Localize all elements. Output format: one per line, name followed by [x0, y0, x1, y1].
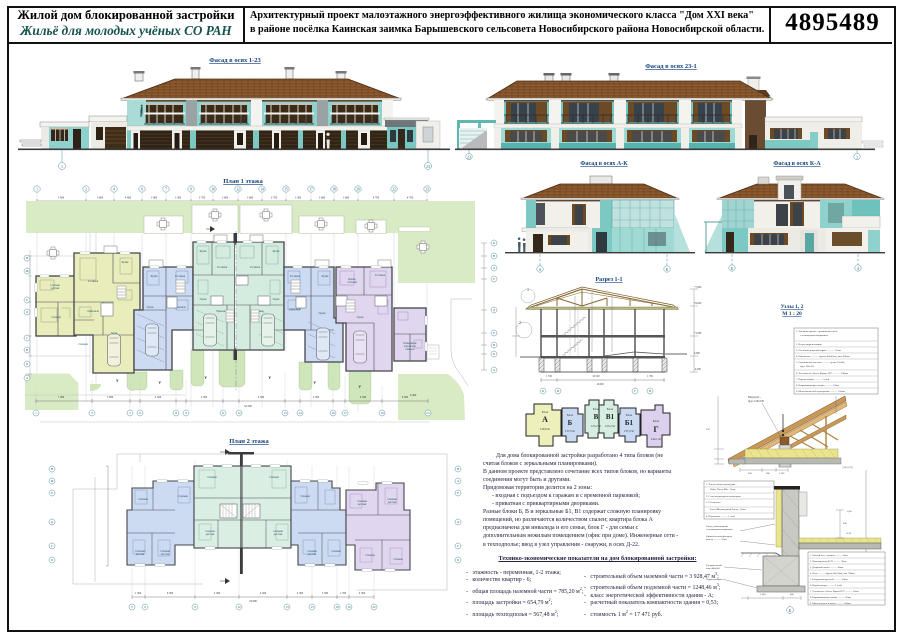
svg-text:4 500: 4 500 — [155, 396, 162, 399]
svg-text:22: 22 — [392, 187, 396, 191]
svg-text:В: В — [26, 348, 28, 352]
svg-text:9. Монолитная ж/б перекрытия —: 9. Монолитная ж/б перекрытия ——— 150мм — [796, 390, 845, 393]
svg-text:Блок: Блок — [593, 407, 600, 411]
svg-text:1. Фасадная краска - кремниева: 1. Фасадная краска - кремниевая стена — [796, 330, 838, 333]
svg-text:К: К — [666, 268, 669, 272]
svg-text:Гараж: Гараж — [319, 312, 326, 315]
svg-text:Е: Е — [457, 491, 459, 495]
svg-text:2 500: 2 500 — [322, 592, 329, 595]
svg-text:Б: Б — [493, 352, 495, 356]
svg-text:Блок: Блок — [567, 413, 574, 417]
svg-text:3 600: 3 600 — [247, 197, 254, 200]
svg-text:детская: детская — [51, 287, 60, 290]
svg-text:Прихожая: Прихожая — [289, 308, 301, 311]
svg-text:5 000: 5 000 — [107, 396, 114, 399]
svg-text:6 400: 6 400 — [410, 394, 417, 397]
svg-text:К: К — [731, 267, 734, 271]
svg-text:Гараж: Гараж — [273, 298, 280, 301]
svg-text:23: 23 — [425, 187, 429, 191]
svg-text:Спальня: Спальня — [78, 343, 88, 346]
svg-text:Фасад в осях А-К: Фасад в осях А-К — [580, 161, 628, 167]
svg-text:Ж: Ж — [51, 479, 54, 483]
svg-text:4. Лаги ——— брусок 40х70мм, ша: 4. Лаги ——— брусок 40х70мм, шаг 700мм — [810, 572, 855, 575]
svg-text:4 500: 4 500 — [360, 396, 367, 399]
svg-text:Г: Г — [457, 544, 459, 548]
svg-text:2: 2 — [519, 320, 521, 325]
svg-text:23: 23 — [467, 154, 471, 159]
svg-text:11: 11 — [221, 411, 224, 415]
svg-text:Б: Б — [51, 558, 53, 562]
svg-text:6 400: 6 400 — [402, 396, 409, 399]
svg-text:1 700: 1 700 — [546, 375, 553, 378]
svg-text:Гостиная: Гостиная — [290, 275, 301, 278]
svg-text:4 300: 4 300 — [359, 592, 366, 595]
svg-text:3 600: 3 600 — [222, 197, 229, 200]
svg-text:Е: Е — [493, 277, 495, 281]
svg-text:200: 200 — [748, 472, 752, 475]
svg-text:Б: Б — [26, 362, 28, 366]
svg-text:4 700: 4 700 — [407, 197, 414, 200]
svg-text:Кухня: Кухня — [200, 250, 208, 253]
svg-text:2. Ветро-гидроизоляция: 2. Ветро-гидроизоляция — [796, 343, 822, 346]
svg-text:14 600: 14 600 — [596, 383, 604, 386]
svg-text:400: 400 — [790, 593, 794, 596]
svg-text:3. Дощатый настил ——— 40мм: 3. Дощатый настил ——— 40мм — [810, 566, 844, 569]
svg-text:Izover/Штукатурный Фасад - 50м: Izover/Штукатурный Фасад - 50мм — [710, 508, 746, 511]
svg-text:А: А — [857, 267, 860, 271]
svg-text:Спальня: Спальня — [51, 316, 61, 319]
svg-text:15: 15 — [310, 605, 314, 609]
svg-text:1 500: 1 500 — [135, 592, 142, 595]
svg-text:детская: детская — [206, 533, 215, 536]
svg-text:В: В — [594, 413, 599, 421]
svg-text:детская: детская — [161, 553, 170, 556]
svg-text:18: 18 — [335, 605, 339, 609]
svg-text:с полимерным покрытием: с полимерным покрытием — [800, 334, 828, 337]
svg-text:+7,600: +7,600 — [694, 286, 702, 289]
svg-text:1: 1 — [527, 287, 529, 292]
svg-text:Фасад в осях 23-1: Фасад в осях 23-1 — [645, 63, 697, 70]
svg-text:34 900: 34 900 — [249, 600, 257, 603]
svg-text:19: 19 — [380, 411, 384, 415]
svg-text:4 500: 4 500 — [201, 396, 208, 399]
svg-text:Узлы 1, 2: Узлы 1, 2 — [781, 304, 804, 310]
svg-text:+3,300: +3,300 — [694, 332, 702, 335]
svg-text:4 300: 4 300 — [260, 592, 267, 595]
svg-text:брус 100х150: брус 100х150 — [800, 365, 815, 368]
svg-text:Гараж: Гараж — [147, 306, 154, 309]
svg-text:Мауэрлат -: Мауэрлат - — [748, 396, 761, 399]
svg-text:детская: детская — [358, 503, 367, 506]
svg-text:20: 20 — [356, 187, 360, 191]
svg-text:14: 14 — [260, 187, 264, 191]
svg-text:7. Утеплитель «Izover Каркас П: 7. Утеплитель «Izover Каркас П37 ——— 25м… — [810, 590, 859, 593]
svg-text:8. Выравнивающая стяжка ——— 10: 8. Выравнивающая стяжка ——— 10мм — [796, 384, 839, 387]
svg-text:Спальня: Спальня — [331, 550, 341, 553]
svg-text:22: 22 — [372, 605, 376, 609]
svg-text:10: 10 — [211, 187, 215, 191]
svg-text:7 400: 7 400 — [58, 396, 65, 399]
svg-text:Фасад в осях 1-23: Фасад в осях 1-23 — [209, 57, 261, 64]
svg-text:16: 16 — [331, 411, 335, 415]
svg-text:6: 6 — [141, 187, 143, 191]
svg-text:4 500: 4 500 — [313, 396, 320, 399]
svg-text:900: 900 — [843, 522, 847, 525]
svg-text:17: 17 — [343, 411, 347, 415]
svg-text:Кухня: Кухня — [273, 250, 281, 253]
svg-text:Блок: Блок — [653, 419, 660, 423]
svg-text:4 700: 4 700 — [373, 197, 380, 200]
svg-text:столовая: столовая — [347, 281, 357, 284]
svg-text:Гараж: Гараж — [200, 298, 207, 301]
svg-text:Д: Д — [493, 308, 495, 312]
svg-text:4 500: 4 500 — [258, 396, 265, 399]
svg-text:-0,38: -0,38 — [846, 532, 852, 535]
svg-text:250: 250 — [706, 428, 710, 431]
svg-text:План 2 этажа: План 2 этажа — [229, 438, 269, 445]
svg-text:Спальня: Спальня — [300, 495, 310, 498]
svg-text:4 300: 4 300 — [214, 592, 221, 595]
svg-text:План 1 этажа: План 1 этажа — [223, 178, 263, 185]
svg-text:бизнеса: бизнеса — [406, 348, 416, 351]
svg-text:1 200: 1 200 — [779, 472, 785, 475]
svg-text:Г: Г — [26, 336, 28, 340]
svg-text:1: 1 — [36, 187, 38, 191]
svg-text:9: 9 — [190, 187, 192, 191]
svg-text:23: 23 — [426, 411, 430, 415]
svg-text:3 300: 3 300 — [175, 197, 182, 200]
svg-text:К: К — [789, 609, 792, 613]
svg-text:1. Чистый пол - ламинат ——— 8м: 1. Чистый пол - ламинат ——— 8мм — [810, 554, 848, 557]
svg-text:3 600: 3 600 — [97, 197, 104, 200]
svg-text:5. Стропильная система ——— дос: 5. Стропильная система ——— доска 150х40, — [796, 361, 845, 364]
svg-text:Гараж: Гараж — [111, 332, 118, 335]
svg-text:Спальня: Спальня — [393, 558, 403, 561]
svg-text:Б1: Б1 — [625, 419, 634, 427]
svg-text:Кухня: Кухня — [322, 275, 330, 278]
svg-text:Блок: Блок — [607, 407, 614, 411]
svg-text:5 400: 5 400 — [58, 197, 65, 200]
svg-text:Гостиная: Гостиная — [88, 280, 99, 283]
svg-text:9. Монолитная ж/б плита ——— 10: 9. Монолитная ж/б плита ——— 100мм — [810, 602, 851, 605]
svg-text:детская: детская — [136, 553, 145, 556]
svg-text:6 300: 6 300 — [167, 592, 174, 595]
svg-text:А: А — [542, 415, 548, 424]
svg-text:+0,00: +0,00 — [846, 510, 852, 513]
svg-text:Прихожая: Прихожая — [87, 310, 99, 313]
svg-text:Б: Б — [568, 419, 573, 427]
svg-text:1: 1 — [61, 164, 63, 169]
svg-text:6. Пароизоляция ——— 1 слой: 6. Пароизоляция ——— 1 слой — [810, 584, 843, 587]
svg-text:12: 12 — [236, 187, 240, 191]
svg-text:Фасад в осях К-А: Фасад в осях К-А — [773, 161, 821, 167]
svg-text:Г: Г — [51, 544, 53, 548]
svg-text:Г: Г — [634, 389, 636, 393]
svg-text:19: 19 — [347, 605, 351, 609]
svg-text:1: 1 — [856, 154, 858, 159]
svg-text:Блок: Блок — [626, 413, 633, 417]
svg-text:54 200: 54 200 — [244, 405, 252, 408]
svg-text:3 600: 3 600 — [319, 197, 326, 200]
svg-text:2. Прокладочная ДСП ——— 16мм: 2. Прокладочная ДСП ——— 16мм — [810, 560, 847, 563]
svg-text:Спальня: Спальня — [178, 495, 188, 498]
svg-text:2 700: 2 700 — [199, 197, 206, 200]
svg-text:12: 12 — [237, 411, 241, 415]
svg-text:7,60 (2,76): 7,60 (2,76) — [842, 466, 853, 469]
svg-text:детская: детская — [274, 533, 283, 536]
svg-text:13: 13 — [285, 605, 289, 609]
svg-text:6. Утеплитель «Izover Каркас П: 6. Утеплитель «Izover Каркас П37 ——— 240… — [796, 372, 848, 375]
svg-text:17: 17 — [309, 187, 313, 191]
svg-text:В: В — [493, 343, 495, 347]
svg-text:+6,020: +6,020 — [694, 302, 702, 305]
svg-text:15: 15 — [284, 187, 288, 191]
svg-text:4. Обрешетка ——— брусок 40х45м: 4. Обрешетка ——— брусок 40х45мм, шаг 300… — [796, 355, 850, 358]
svg-text:В1: В1 — [606, 413, 615, 421]
svg-text:2 700: 2 700 — [271, 197, 278, 200]
svg-text:Спальня: Спальня — [365, 554, 375, 557]
svg-text:-2,280: -2,280 — [694, 368, 701, 371]
svg-text:1 700: 1 700 — [647, 375, 654, 378]
svg-text:Блок: Блок — [542, 410, 549, 414]
svg-text:7: 7 — [165, 187, 167, 191]
svg-text:Е: Е — [51, 491, 53, 495]
svg-text:Г: Г — [653, 425, 658, 434]
svg-text:детская: детская — [308, 553, 317, 556]
svg-text:Разрез 1-1: Разрез 1-1 — [596, 277, 623, 283]
svg-text:Гостиная: Гостиная — [175, 275, 186, 278]
svg-text:4: 4 — [113, 187, 115, 191]
svg-text:Спальня: Спальня — [207, 476, 217, 479]
svg-text:Walter Therm Min - 15мм: Walter Therm Min - 15мм — [710, 488, 736, 491]
svg-text:3. Стеновой дощатый каркас ———: 3. Стеновой дощатый каркас ——— 25мм — [796, 349, 841, 352]
svg-text:7. Пароизоляция ——— 1 слой: 7. Пароизоляция ——— 1 слой — [796, 378, 830, 381]
svg-text:Гостиная: Гостиная — [217, 266, 228, 269]
svg-text:Кухня: Кухня — [122, 261, 130, 264]
svg-text:3 300: 3 300 — [295, 197, 302, 200]
svg-text:2: 2 — [85, 187, 87, 191]
svg-text:5. Воздушный прослой ——— 20мм: 5. Воздушный прослой ——— 20мм — [810, 578, 848, 581]
svg-text:М 1 : 20: М 1 : 20 — [782, 311, 802, 317]
svg-text:13: 13 — [283, 411, 287, 415]
svg-text:1 400: 1 400 — [760, 593, 766, 596]
svg-text:3 900: 3 900 — [151, 197, 158, 200]
svg-text:Б: Б — [457, 558, 459, 562]
svg-text:Гостиная: Гостиная — [250, 266, 261, 269]
svg-text:14: 14 — [298, 411, 302, 415]
svg-text:Е: Е — [26, 298, 28, 302]
svg-text:Кухня: Кухня — [151, 275, 159, 278]
svg-text:Спальня: Спальня — [138, 498, 148, 501]
svg-text:4 300: 4 300 — [297, 592, 304, 595]
svg-text:4 800: 4 800 — [125, 197, 132, 200]
svg-text:0,000: 0,000 — [694, 352, 701, 355]
svg-text:1 700: 1 700 — [340, 592, 347, 595]
svg-text:Спальня: Спальня — [269, 476, 279, 479]
svg-text:Ж: Ж — [26, 269, 29, 273]
svg-text:детская: детская — [388, 501, 397, 504]
svg-text:10 500: 10 500 — [592, 375, 600, 378]
svg-text:3 600: 3 600 — [343, 197, 350, 200]
svg-text:Е: Е — [493, 331, 495, 335]
svg-text:600: 600 — [766, 472, 770, 475]
svg-text:А: А — [539, 268, 542, 272]
svg-text:18: 18 — [332, 187, 336, 191]
svg-text:23: 23 — [426, 164, 430, 169]
svg-text:В: В — [649, 389, 651, 393]
svg-text:12: 12 — [237, 605, 241, 609]
svg-text:брус 150х150: брус 150х150 — [748, 400, 765, 403]
svg-text:Гостиная: Гостиная — [375, 274, 386, 277]
svg-text:8. Выравнивающая стяжка ——— 20: 8. Выравнивающая стяжка ——— 20мм — [810, 596, 851, 599]
svg-text:Гараж: Гараж — [357, 316, 364, 319]
